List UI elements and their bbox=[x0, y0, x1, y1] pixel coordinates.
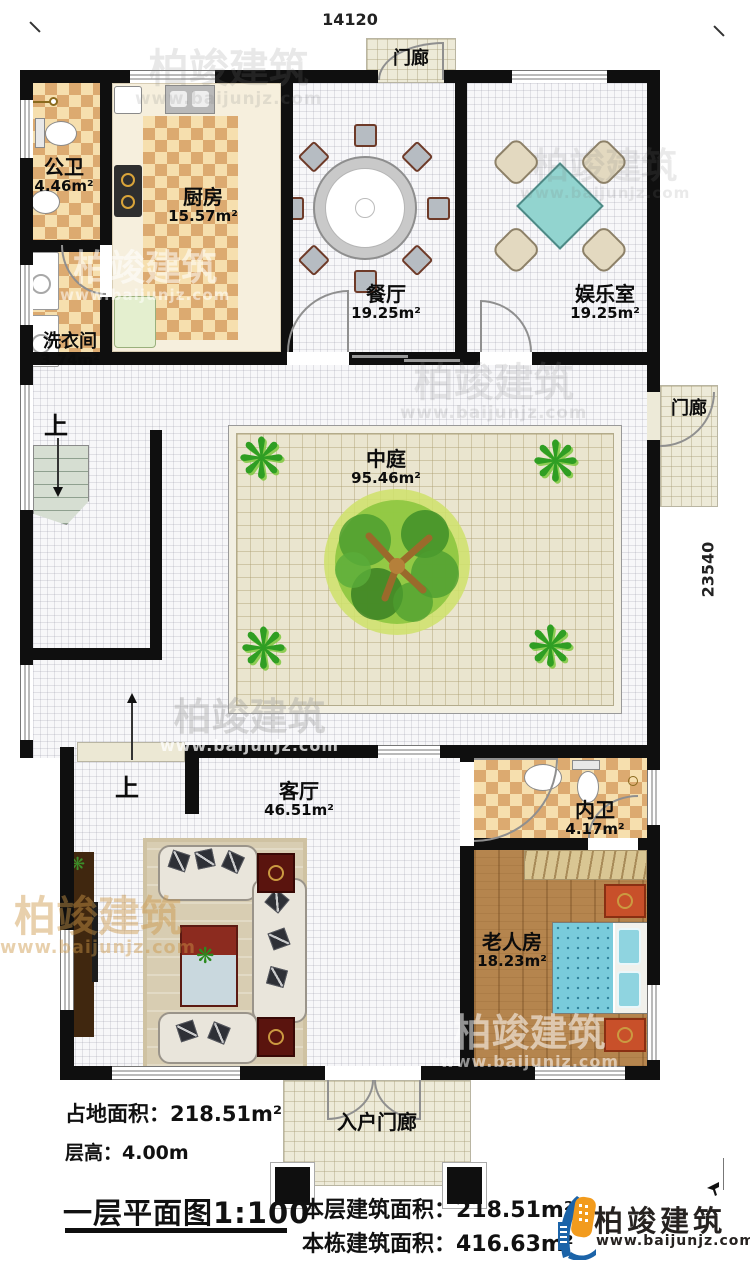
door-opening bbox=[647, 392, 660, 440]
wall bbox=[281, 83, 293, 364]
plant-icon: ❋ bbox=[196, 946, 214, 968]
room-area: 3.74m² bbox=[26, 352, 114, 369]
kitchen-corner-counter bbox=[114, 86, 142, 114]
room-area: 19.25m² bbox=[549, 305, 661, 322]
stairs-up-label: 上 bbox=[115, 768, 139, 803]
door-opening bbox=[480, 352, 532, 365]
stairs-arrow-line bbox=[57, 438, 59, 488]
dimension-tick bbox=[713, 25, 724, 36]
sliding-door bbox=[404, 359, 460, 362]
wall bbox=[185, 752, 199, 814]
window bbox=[20, 100, 33, 158]
room-name: 内卫 bbox=[549, 799, 641, 821]
door-leaf bbox=[480, 300, 482, 352]
stove-icon bbox=[114, 165, 142, 217]
plan-title-underline bbox=[65, 1228, 287, 1233]
wardrobe-icon bbox=[524, 850, 647, 880]
dimension-right: 23540 bbox=[699, 530, 718, 610]
living-label: 客厅 46.51m² bbox=[243, 780, 355, 819]
room-name: 洗衣间 bbox=[26, 332, 114, 352]
entry-porch-label: 入户门廊 bbox=[283, 1106, 471, 1135]
window bbox=[647, 770, 660, 825]
atrium-label: 中庭 95.46m² bbox=[330, 448, 442, 487]
plan-title: 一层平面图1:100 bbox=[63, 1190, 310, 1232]
elder-room-label: 老人房 18.23m² bbox=[456, 931, 568, 970]
building-area-text: 本栋建筑面积：416.63m² bbox=[302, 1226, 573, 1258]
room-name: 餐厅 bbox=[330, 283, 442, 305]
entertainment-label: 娱乐室 19.25m² bbox=[549, 283, 661, 322]
floor-area-text: 本层建筑面积：218.51m² bbox=[302, 1192, 573, 1224]
room-name: 厨房 bbox=[148, 186, 258, 208]
inner-bath-label: 内卫 4.17m² bbox=[549, 799, 641, 838]
room-name: 老人房 bbox=[456, 931, 568, 953]
ornament bbox=[617, 893, 633, 909]
door-opening bbox=[460, 762, 474, 846]
dining-label: 餐厅 19.25m² bbox=[330, 283, 442, 322]
ornament bbox=[617, 1027, 633, 1043]
room-name: 娱乐室 bbox=[549, 283, 661, 305]
shrub-icon: ❋ bbox=[238, 432, 285, 488]
kitchen-label: 厨房 15.57m² bbox=[148, 186, 258, 225]
porch-top-label: 门廊 bbox=[366, 44, 456, 70]
hall-arrow-head bbox=[127, 693, 137, 703]
stairs-arrow-head bbox=[53, 487, 63, 497]
window bbox=[20, 265, 33, 325]
sliding-door bbox=[352, 355, 408, 358]
window bbox=[112, 1066, 240, 1080]
wall bbox=[444, 70, 456, 83]
company-logo-icon bbox=[556, 1192, 598, 1260]
side-table bbox=[257, 1017, 295, 1057]
pillow-icon bbox=[194, 848, 215, 869]
door-opening bbox=[325, 1066, 421, 1080]
burner bbox=[121, 195, 135, 209]
tree-icon bbox=[317, 482, 477, 642]
shrub-icon: ❋ bbox=[527, 620, 574, 676]
window bbox=[512, 70, 607, 83]
ornament bbox=[268, 1029, 284, 1045]
window bbox=[20, 665, 33, 740]
wall bbox=[455, 83, 467, 364]
wall bbox=[60, 747, 74, 1080]
kitchen-tile bbox=[143, 116, 238, 340]
room-area: 18.23m² bbox=[456, 953, 568, 970]
room-area: 4.17m² bbox=[549, 821, 641, 838]
room-name: 公卫 bbox=[28, 156, 100, 178]
cursor-line bbox=[723, 1158, 724, 1190]
wall bbox=[366, 70, 378, 83]
shower-head-icon bbox=[49, 97, 58, 106]
window bbox=[130, 70, 215, 83]
chair-icon bbox=[354, 124, 377, 147]
room-area: 19.25m² bbox=[330, 305, 442, 322]
room-area: 4.46m² bbox=[28, 178, 100, 195]
shrub-icon: ❋ bbox=[240, 622, 287, 678]
public-bath-label: 公卫 4.46m² bbox=[28, 156, 100, 195]
window bbox=[535, 1066, 625, 1080]
burner bbox=[121, 173, 135, 187]
floor-drain-icon bbox=[628, 776, 638, 786]
shrub-icon: ❋ bbox=[532, 435, 579, 491]
tv-cabinet bbox=[74, 852, 94, 1037]
window bbox=[20, 385, 33, 510]
kitchen-sink bbox=[165, 85, 215, 114]
room-name: 中庭 bbox=[330, 448, 442, 470]
window bbox=[60, 930, 74, 1010]
side-table bbox=[257, 853, 295, 893]
window bbox=[378, 745, 440, 758]
door-opening bbox=[588, 838, 638, 850]
sink-basin bbox=[170, 91, 187, 107]
table-center bbox=[355, 198, 375, 218]
mouse-cursor-icon bbox=[705, 1180, 721, 1198]
dimension-top: 14120 bbox=[300, 10, 400, 29]
toilet-tank bbox=[35, 118, 45, 148]
tv-icon bbox=[92, 902, 98, 982]
room-area: 46.51m² bbox=[243, 802, 355, 819]
wall bbox=[150, 430, 162, 660]
land-area-text: 占地面积：218.51m² bbox=[65, 1098, 282, 1128]
wall bbox=[100, 83, 112, 364]
nightstand bbox=[604, 884, 646, 918]
ornament bbox=[268, 865, 284, 881]
porch-right-label: 门廊 bbox=[660, 394, 718, 420]
room-area: 15.57m² bbox=[148, 208, 258, 225]
outside-mask bbox=[33, 758, 60, 1066]
door-opening bbox=[287, 352, 349, 365]
chair-icon bbox=[427, 197, 450, 220]
room-name: 客厅 bbox=[243, 780, 355, 802]
hall-arrow-line bbox=[131, 702, 133, 760]
window bbox=[647, 985, 660, 1060]
sink-basin bbox=[192, 91, 209, 107]
toilet-icon bbox=[45, 121, 77, 146]
wall bbox=[647, 70, 660, 1080]
door-leaf bbox=[474, 758, 558, 760]
wall bbox=[20, 648, 162, 660]
toilet-tank bbox=[572, 760, 600, 770]
fridge-icon bbox=[114, 296, 156, 348]
laundry-label: 洗衣间 3.74m² bbox=[26, 332, 114, 369]
dimension-tick bbox=[29, 21, 40, 32]
pillow-icon bbox=[617, 971, 641, 1008]
floor-height-text: 层高：4.00m bbox=[65, 1138, 189, 1165]
pillow-icon bbox=[617, 928, 641, 965]
company-logo-url: www.baijunjz.com bbox=[596, 1233, 750, 1249]
nightstand bbox=[604, 1018, 646, 1052]
floor-plan: ❋ ❋ ❋ ❋ bbox=[0, 0, 750, 1263]
stairs-up-label: 上 bbox=[44, 406, 68, 441]
room-area: 95.46m² bbox=[330, 470, 442, 487]
